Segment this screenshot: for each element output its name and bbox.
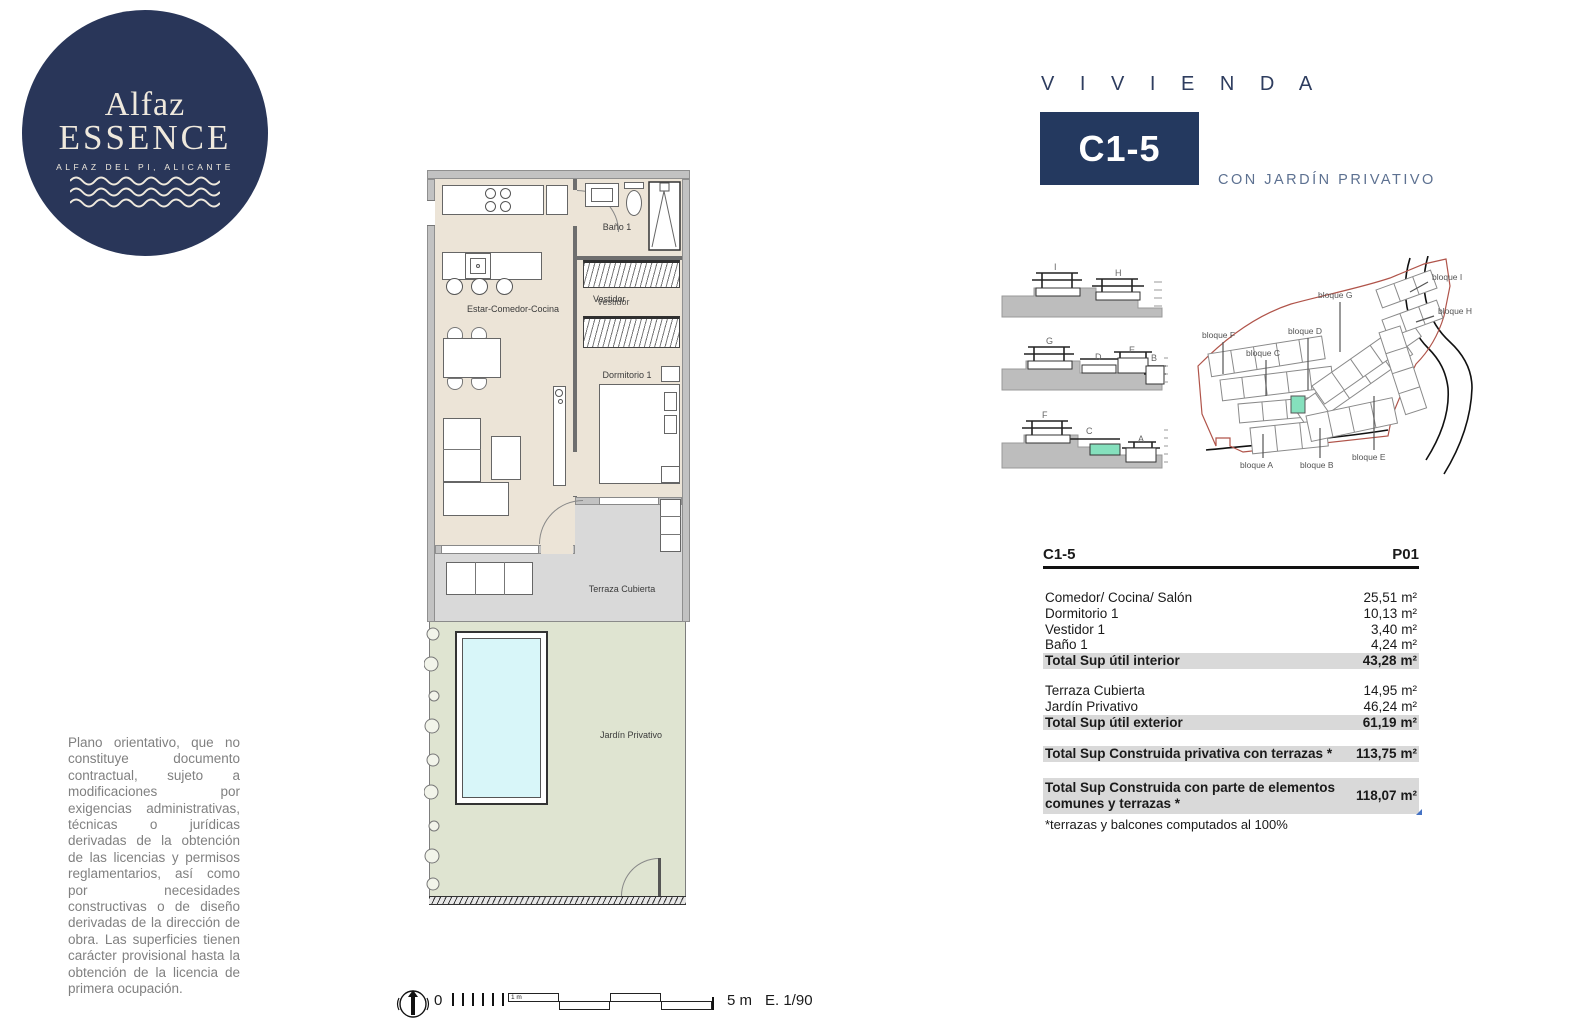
scalebar-end-label: 5 m [727,992,752,1009]
elevation-label-I: I [1054,262,1057,272]
siteplan-label-bloque-b: bloque B [1300,460,1334,470]
washer-knob-2 [558,399,563,404]
pillow-1 [664,392,677,411]
elevation-label-E: E [1129,345,1135,355]
brand-logo: Alfaz ESSENCE ALFAZ DEL PI, ALICANTE [22,10,268,256]
elevation-label-C: C [1086,426,1093,436]
table-row-total-built-private: Total Sup Construida privativa con terra… [1043,746,1419,762]
scalebar-segment: 1 m [508,993,559,1002]
row-value: 113,75 [1353,746,1397,762]
north-compass-icon [396,988,430,1020]
row-value: 118,07 [1353,788,1397,804]
row-unit: m² [1401,637,1417,653]
sofa-vertical [443,418,481,482]
table-row: Terraza Cubierta 14,95m² [1043,683,1419,699]
pool-water [462,638,541,798]
bedroom-window [599,497,659,505]
nightstand-1 [661,366,680,382]
siteplan-label-bloque-a: bloque A [1240,460,1273,470]
elevation-label-D: D [1095,352,1102,362]
room-label-living: Estar-Comedor-Cocina [457,304,569,314]
row-unit: m² [1401,746,1418,762]
elevation-diagram: I H G D E B F C A [998,262,1168,470]
row-unit: m² [1401,622,1417,638]
siteplan-label-bloque-i: bloque I [1432,272,1462,282]
elevation-label-A: A [1138,434,1144,444]
row-label: Total Sup Construida privativa con terra… [1045,746,1332,762]
wall-right [682,179,690,622]
floor-plan: Baño 1 Vestidor Vestidor Dormitorio 1 [427,170,690,906]
brand-tagline: ALFAZ DEL PI, ALICANTE [22,162,268,172]
stove-burner-2 [500,188,511,199]
siteplan-label-bloque-e: bloque E [1352,452,1386,462]
row-unit: m² [1401,590,1417,606]
room-label-terrace: Terraza Cubierta [562,584,682,594]
terrace-closet [660,499,681,552]
row-value: 4,24 [1353,637,1397,653]
row-value: 14,95 [1353,683,1397,699]
bath-sink-basin [591,188,613,202]
stool-1 [446,278,463,295]
room-label-bathroom: Baño 1 [577,222,657,232]
dining-table [443,338,501,378]
row-unit: m² [1401,606,1417,622]
unit-subtitle: CON JARDÍN PRIVATIVO [1218,172,1436,188]
stove-burner-4 [500,201,511,212]
wall-left [427,179,435,622]
table-row-total-interior: Total Sup útil interior 43,28m² [1043,653,1419,669]
bench-divider-1 [475,562,476,595]
table-unit-code: C1-5 [1043,546,1076,563]
row-value: 25,51 [1353,590,1397,606]
table-footnote: *terrazas y balcones computados al 100% [1043,817,1419,832]
row-value: 3,40 [1353,622,1397,638]
page-kicker: V I V I E N D A [1041,73,1322,96]
room-label-vestidor-overlap: Vestidor [597,297,630,307]
row-unit: m² [1401,683,1417,699]
room-label-garden: Jardín Privativo [575,730,687,740]
table-row: Vestidor 1 3,40m² [1043,622,1419,638]
scalebar-tick [502,993,504,1006]
scalebar-tick [482,993,484,1006]
scale-ratio-label: E. 1/90 [765,992,813,1009]
washer-knob-1 [555,389,563,397]
row-label: Terraza Cubierta [1045,683,1145,699]
row-value: 43,28 [1353,653,1397,669]
note-marker [1416,809,1422,815]
row-value: 10,13 [1353,606,1397,622]
scalebar-segment [559,1001,610,1010]
stove-burner-3 [485,201,496,212]
row-unit: m² [1401,788,1418,804]
scalebar-segment [661,1001,712,1010]
row-label: Total Sup útil interior [1045,653,1180,669]
row-label: Dormitorio 1 [1045,606,1119,622]
scalebar-end-tick [712,997,714,1010]
living-window [441,545,539,554]
siteplan-label-bloque-d: bloque D [1288,326,1322,336]
unit-code-badge: C1-5 [1040,112,1199,185]
scalebar-tick [492,993,494,1006]
row-value: 46,24 [1353,699,1397,715]
table-row: Comedor/ Cocina/ Salón 25,51m² [1043,590,1419,606]
coffee-table [491,436,521,480]
row-label: Comedor/ Cocina/ Salón [1045,590,1192,606]
wardrobe-2 [583,316,680,348]
elevation-label-F: F [1042,410,1048,420]
garden-gate-leaf [658,858,661,898]
wall-top [427,170,690,179]
wardrobe-1 [583,260,680,288]
stool-3 [496,278,513,295]
siteplan-label-bloque-g: bloque G [1318,290,1353,300]
row-label: Vestidor 1 [1045,622,1105,638]
scalebar-tick [462,993,464,1006]
site-plan: bloque F bloque C bloque D bloque G bloq… [1188,256,1480,478]
row-unit: m² [1401,653,1418,669]
shrubs-icon [424,622,442,896]
scalebar-segment-label: 1 m [511,994,522,1001]
brand-name-main: ESSENCE [22,118,268,158]
row-label: Baño 1 [1045,637,1088,653]
closet-shelf-1 [660,516,681,517]
unit-code: C1-5 [1078,128,1160,170]
elevation-label-H: H [1115,268,1122,278]
hall-opening [573,452,577,496]
scalebar-tick [452,993,454,1006]
sofa-cushion-line [443,449,481,450]
row-label: Total Sup útil exterior [1045,715,1183,731]
window-left [427,200,435,226]
toilet-icon [626,190,642,216]
sink-drain [476,264,480,268]
elevation-label-B: B [1151,353,1157,363]
table-row: Dormitorio 1 10,13m² [1043,606,1419,622]
row-label: Jardín Privativo [1045,699,1138,715]
scalebar-zero-label: 0 [434,992,442,1009]
area-table: C1-5 P01 Comedor/ Cocina/ Salón 25,51m² … [1043,546,1419,832]
table-row: Baño 1 4,24m² [1043,637,1419,653]
sofa-chaise [443,482,509,516]
row-unit: m² [1401,699,1417,715]
waves-icon [70,176,220,214]
kitchen-island [442,252,542,280]
living-door-opening [541,545,573,554]
shower-icon [648,181,681,251]
scalebar: 1 m [508,993,720,1011]
disclaimer-text: Plano orientativo, que no constituye doc… [68,735,240,998]
bench-divider-2 [504,562,505,595]
elevation-label-G: G [1046,336,1053,346]
floorplan-sheet: Alfaz ESSENCE ALFAZ DEL PI, ALICANTE V I… [0,0,1590,1020]
kitchen-cabinet [546,185,568,215]
scalebar-segment [610,993,661,1002]
stove-burner-1 [485,188,496,199]
pillow-2 [664,415,677,434]
scalebar-tick [472,993,474,1006]
toilet-tank [624,182,644,189]
table-row-total-exterior: Total Sup útil exterior 61,19m² [1043,715,1419,731]
garden-fence [429,896,686,905]
stool-2 [471,278,488,295]
row-unit: m² [1401,715,1418,731]
table-row: Jardín Privativo 46,24m² [1043,699,1419,715]
row-label: Total Sup Construida con parte de elemen… [1045,780,1341,812]
table-header: C1-5 P01 [1043,546,1419,569]
table-floor: P01 [1392,546,1419,563]
table-row-total-built-common: Total Sup Construida con parte de elemen… [1043,778,1419,814]
terrace-bench [446,562,533,595]
nightstand-2 [661,466,680,483]
row-value: 61,19 [1353,715,1397,731]
highlighted-unit [1291,396,1305,413]
closet-shelf-2 [660,534,681,535]
siteplan-label-bloque-c: bloque C [1246,348,1280,358]
room-label-vestidor-group: Vestidor Vestidor [587,294,677,310]
siteplan-label-bloque-f: bloque F [1202,330,1235,340]
siteplan-label-bloque-h: bloque H [1438,306,1472,316]
